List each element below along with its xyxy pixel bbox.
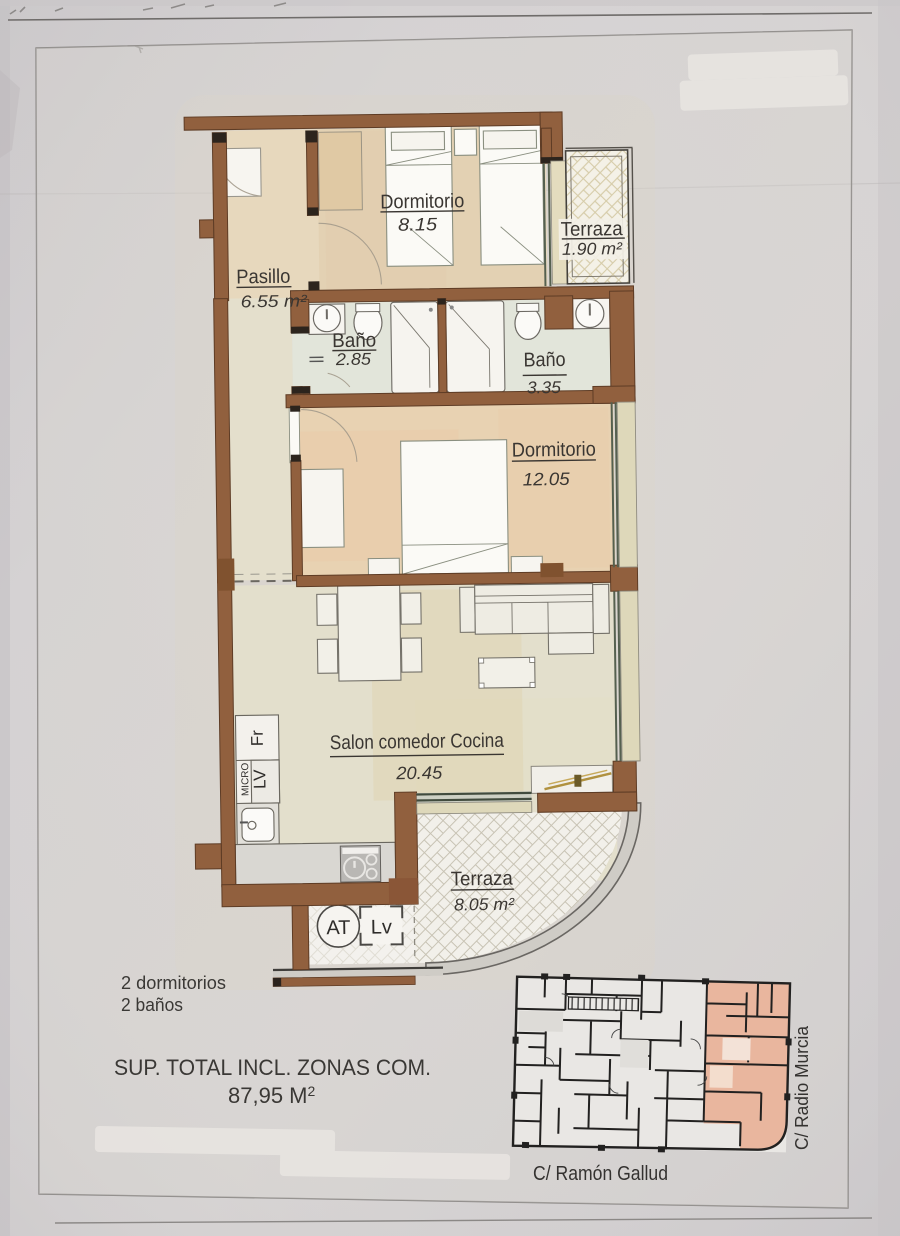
svg-text:Pasillo: Pasillo xyxy=(236,266,290,289)
svg-text:Baño: Baño xyxy=(523,349,565,372)
svg-text:6.55 m²: 6.55 m² xyxy=(241,291,309,311)
svg-text:LV: LV xyxy=(250,769,269,789)
svg-text:3.35: 3.35 xyxy=(527,378,562,397)
svg-text:20.45: 20.45 xyxy=(395,763,443,784)
svg-text:C/ Radio Murcia: C/ Radio Murcia xyxy=(792,1025,812,1150)
svg-text:C/ Ramón Gallud: C/ Ramón Gallud xyxy=(533,1163,668,1185)
svg-text:87,95 M2: 87,95 M2 xyxy=(228,1083,316,1108)
svg-text:Terraza: Terraza xyxy=(451,868,514,891)
svg-text:Lv: Lv xyxy=(371,916,392,938)
svg-text:AT: AT xyxy=(326,917,350,939)
svg-text:1.90 m²: 1.90 m² xyxy=(562,239,624,259)
svg-text:8.15: 8.15 xyxy=(398,214,438,235)
svg-text:Salon comedor Cocina: Salon comedor Cocina xyxy=(330,730,505,754)
svg-text:Dormitorio: Dormitorio xyxy=(512,438,596,461)
svg-text:2 baños: 2 baños xyxy=(121,995,183,1015)
svg-text:SUP. TOTAL INCL. ZONAS COM.: SUP. TOTAL INCL. ZONAS COM. xyxy=(114,1055,431,1080)
svg-text:12.05: 12.05 xyxy=(523,469,571,490)
svg-text:8.05 m²: 8.05 m² xyxy=(454,895,516,915)
svg-text:Dormitorio: Dormitorio xyxy=(380,190,464,213)
svg-text:2.85: 2.85 xyxy=(335,350,372,370)
svg-text:2 dormitorios: 2 dormitorios xyxy=(121,973,226,993)
svg-text:Fr: Fr xyxy=(248,730,267,747)
